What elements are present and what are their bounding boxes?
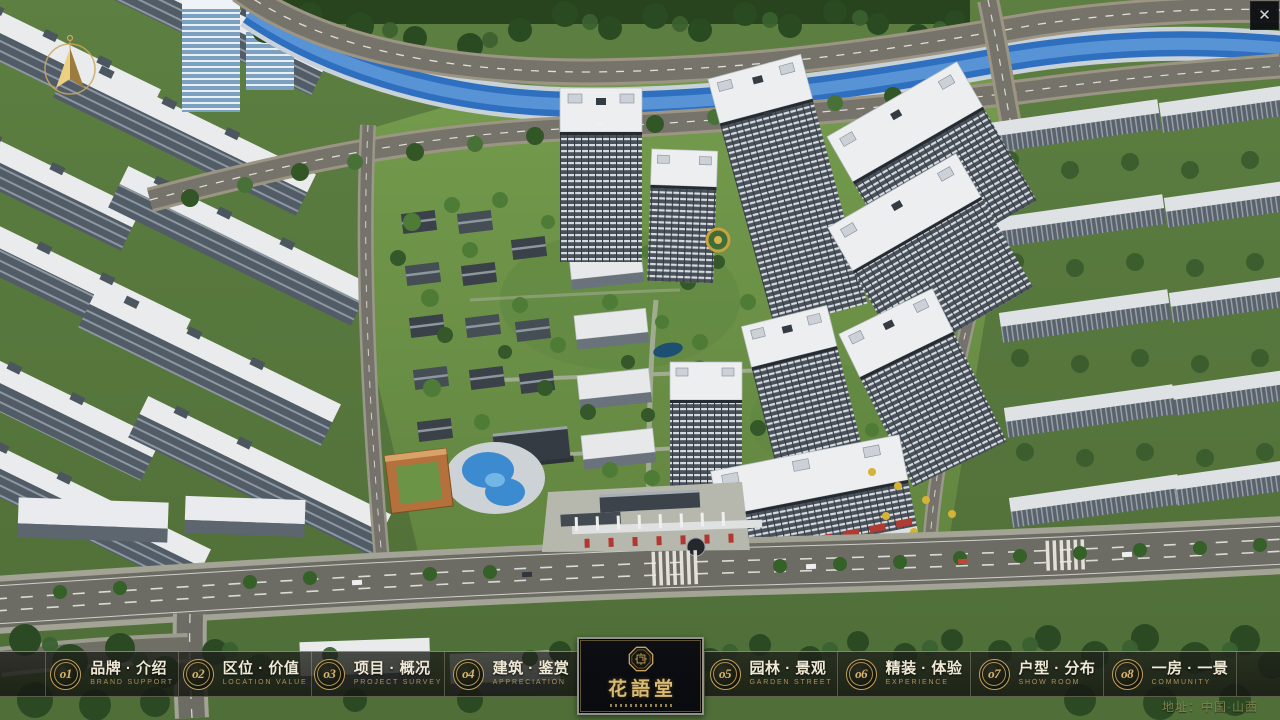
lowrise-west-blocks	[17, 496, 305, 543]
glass-tower	[182, 0, 240, 112]
aerial-site-render-viewport[interactable]	[0, 0, 1280, 720]
nav-badge: o4	[453, 659, 484, 690]
close-button[interactable]: ✕	[1250, 1, 1279, 30]
bottom-nav-bar: o1 品牌 · 介绍BRAND SUPPORT o2 区位 · 价值LOCATI…	[0, 651, 1280, 697]
nav-label: 一房 · 一景	[1152, 661, 1229, 678]
presentation-window: ✕ o1 品牌 · 介绍BRAND SUPPORT o2 区位 · 价值LOCA…	[0, 0, 1280, 720]
nav-item-brand[interactable]: o1 品牌 · 介绍BRAND SUPPORT	[45, 652, 178, 696]
nav-item-community[interactable]: o8 一房 · 一景COMMUNITY	[1103, 652, 1236, 696]
nav-item-floorplans[interactable]: o7 户型 · 分布SHOW ROOM	[970, 652, 1103, 696]
project-address: 地址：中国·山西	[1162, 698, 1258, 715]
nav-item-architecture[interactable]: o4 建筑 · 鉴赏APPRECIATION	[444, 652, 577, 696]
nav-item-location[interactable]: o2 区位 · 价值LOCATION VALUE	[178, 652, 311, 696]
nav-badge: o6	[846, 659, 877, 690]
nav-badge: o7	[979, 659, 1010, 690]
nav-item-garden[interactable]: o5 园林 · 景观GARDEN STREET	[704, 652, 837, 696]
nav-sublabel: SHOW ROOM	[1019, 679, 1081, 687]
swimming-pool	[445, 442, 545, 514]
kindergarten-building	[385, 448, 454, 513]
brand-caption-line	[610, 704, 672, 707]
nav-badge: o8	[1112, 659, 1143, 690]
nav-sublabel: LOCATION VALUE	[223, 679, 308, 687]
nav-sublabel: COMMUNITY	[1152, 679, 1211, 687]
nav-badge: o2	[183, 659, 214, 690]
nav-label: 建筑 · 鉴赏	[493, 661, 570, 678]
nav-sublabel: BRAND SUPPORT	[90, 679, 174, 687]
nav-sublabel: PROJECT SURVEY	[354, 679, 442, 687]
nav-sublabel: APPRECIATION	[493, 679, 566, 687]
nav-item-project[interactable]: o3 项目 · 概况PROJECT SURVEY	[311, 652, 444, 696]
nav-gutter-left	[0, 652, 45, 696]
nav-badge: o1	[50, 659, 81, 690]
nav-label: 区位 · 价值	[223, 661, 300, 678]
nav-badge: o5	[710, 659, 741, 690]
nav-label: 精装 · 体验	[886, 661, 963, 678]
nav-label: 项目 · 概况	[354, 661, 431, 678]
nav-gutter-right	[1236, 652, 1280, 696]
nav-sublabel: EXPERIENCE	[886, 679, 949, 687]
nav-label: 园林 · 景观	[750, 661, 827, 678]
nav-label: 品牌 · 介绍	[90, 661, 167, 678]
brand-seal-icon	[628, 646, 654, 672]
brand-title: 花語堂	[604, 674, 677, 701]
nav-item-interior[interactable]: o6 精装 · 体验EXPERIENCE	[837, 652, 970, 696]
compass-north-icon	[40, 34, 100, 98]
nav-badge: o3	[314, 659, 345, 690]
main-entrance	[542, 482, 763, 556]
nav-label: 户型 · 分布	[1019, 661, 1096, 678]
nav-sublabel: GARDEN STREET	[750, 679, 833, 687]
brand-logo-panel[interactable]: 花語堂	[577, 637, 704, 715]
